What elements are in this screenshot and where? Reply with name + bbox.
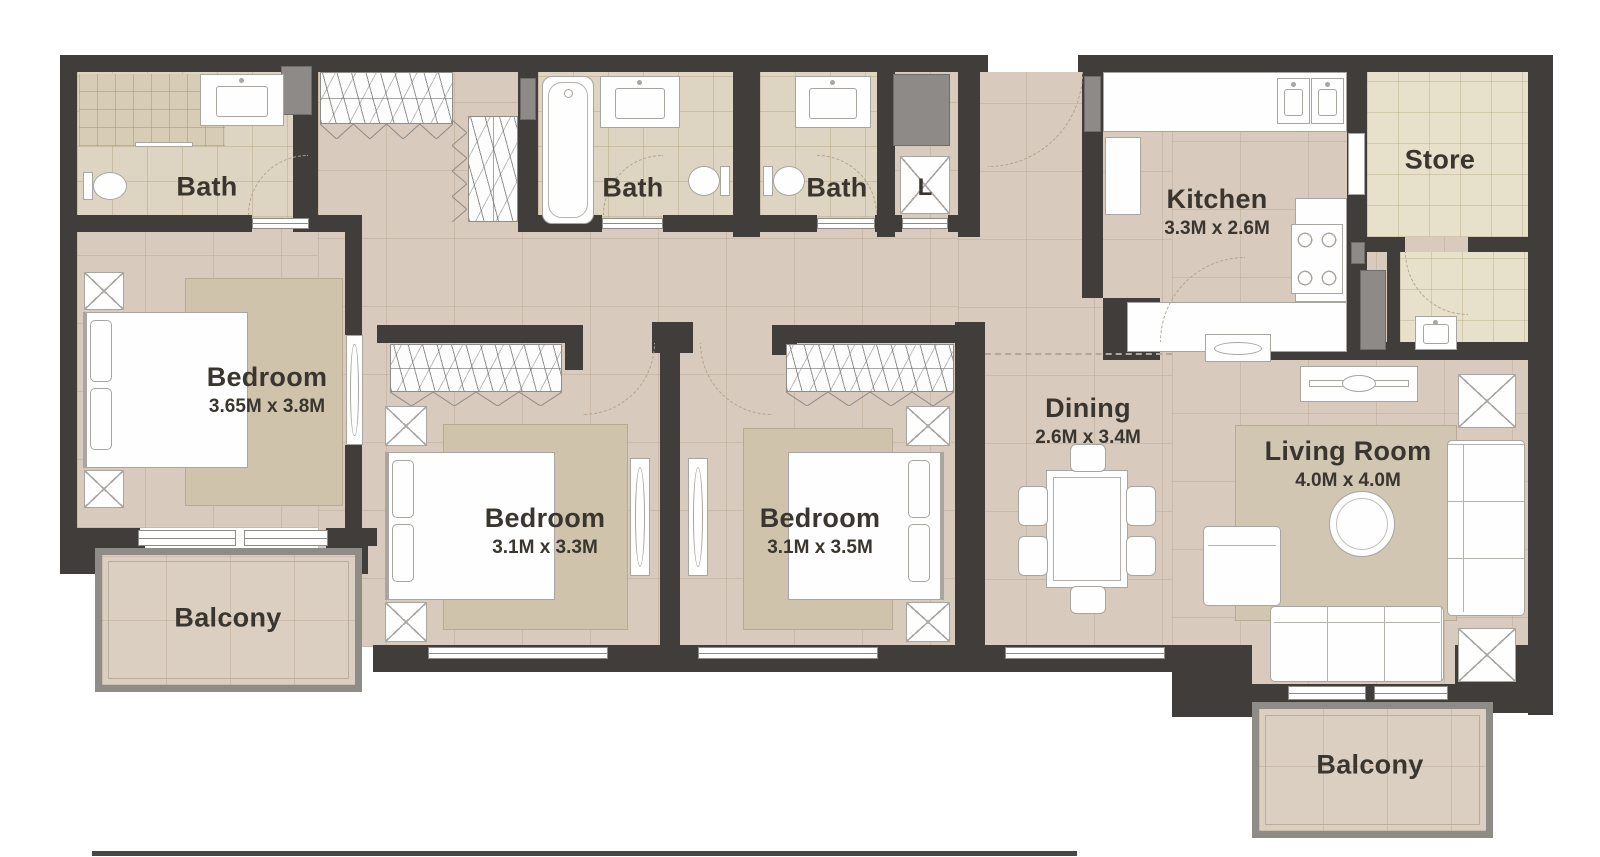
wall (660, 322, 680, 647)
pillow-icon (908, 524, 930, 582)
wall (308, 215, 362, 232)
wall (345, 232, 362, 335)
chair-icon (1070, 586, 1106, 614)
pillow-icon (90, 320, 112, 382)
window (428, 647, 608, 659)
sink-icon (200, 74, 284, 126)
wall (1078, 55, 1553, 72)
service-shaft (281, 66, 312, 115)
balcony-door-sill (1288, 686, 1366, 700)
bath-door-sill (817, 218, 875, 229)
wall (60, 55, 988, 72)
sofa-icon (1447, 440, 1525, 616)
chair-icon (1018, 486, 1048, 526)
pillow-icon (392, 460, 414, 518)
room-label-bedroom-mid: Bedroom 3.1M x 3.3M (485, 503, 606, 559)
sink-icon (1415, 316, 1457, 350)
wall (60, 528, 140, 546)
bifold-door-icon (452, 120, 467, 222)
closet-door-sill (902, 218, 948, 229)
wall (875, 215, 902, 232)
wardrobe-icon (468, 116, 518, 222)
wall (377, 325, 583, 343)
room-label-balcony-left: Balcony (174, 602, 281, 633)
bathtub-icon (542, 76, 594, 224)
wall (1468, 237, 1536, 252)
room-label-balcony-right: Balcony (1316, 749, 1423, 780)
room-label-dining: Dining 2.6M x 3.4M (1035, 393, 1141, 449)
room-label-bedroom-right: Bedroom 3.1M x 3.5M (760, 503, 881, 559)
plant-table-icon (1458, 628, 1516, 682)
bifold-door-icon (786, 392, 954, 406)
chair-icon (1126, 486, 1156, 526)
bifold-door-icon (390, 392, 562, 406)
wall (772, 325, 977, 343)
pillow-icon (908, 460, 930, 518)
wardrobe-icon (390, 344, 562, 392)
window (698, 647, 878, 659)
shower-glass (135, 142, 193, 147)
room-label-bath-top-left: Bath (176, 171, 237, 202)
dining-table-icon (1046, 470, 1128, 588)
mirror-panel-icon (630, 458, 650, 576)
floor-plan: Bath Bath Bath L Kitchen 3.3M x 2.6M Sto… (0, 0, 1600, 857)
wall (948, 215, 958, 232)
wall (345, 445, 362, 548)
nightstand-icon (906, 406, 950, 446)
service-shaft (1084, 76, 1101, 132)
tv-console (1300, 366, 1418, 402)
room-label-living-room: Living Room 4.0M x 4.0M (1265, 436, 1432, 492)
sink-icon (600, 76, 680, 128)
pillow-icon (392, 524, 414, 582)
wall (958, 55, 980, 237)
room-label-bath-mid-right: Bath (806, 172, 867, 203)
nightstand-icon (385, 602, 427, 642)
service-shaft (893, 74, 950, 146)
room-label-store: Store (1405, 144, 1476, 175)
stove-icon (1291, 224, 1343, 294)
wall (733, 72, 760, 237)
bath-door-sill (602, 218, 663, 229)
nightstand-icon (385, 406, 427, 446)
kitchen-sink-icon (1311, 78, 1344, 124)
sink-icon (795, 76, 871, 128)
room-label-bath-mid-left: Bath (602, 172, 663, 203)
wall (60, 55, 77, 548)
wall (1528, 55, 1553, 715)
window (1005, 647, 1165, 659)
mirror-panel-icon (688, 458, 708, 576)
balcony-door-sill (1374, 686, 1448, 700)
bifold-door-icon (320, 124, 453, 139)
pillow-icon (90, 388, 112, 450)
balcony-door-sill (138, 530, 236, 546)
wardrobe-icon (320, 72, 453, 124)
nightstand-icon (906, 602, 950, 642)
wall (565, 325, 583, 370)
service-shaft (1360, 270, 1386, 350)
nightstand-icon (84, 470, 124, 508)
wall (955, 322, 985, 647)
balcony-door-sill (244, 530, 328, 546)
kitchen-sink-icon (1277, 78, 1310, 124)
service-shaft (520, 78, 536, 120)
chair-icon (1126, 536, 1156, 576)
room-label-laundry: L (918, 174, 933, 202)
room-label-bedroom-left: Bedroom 3.65M x 3.8M (207, 362, 328, 418)
coffee-table-icon (1329, 491, 1395, 557)
bath-door-sill (252, 218, 309, 229)
nightstand-icon (84, 272, 124, 310)
plant-table-icon (1458, 374, 1516, 428)
page-edge-line (92, 851, 1077, 856)
room-label-kitchen: Kitchen 3.3M x 2.6M (1164, 184, 1270, 240)
tv-icon (1342, 375, 1376, 392)
wall (663, 215, 817, 232)
sofa-icon (1270, 606, 1444, 682)
sliding-door-mirror-icon (346, 335, 363, 445)
chair-icon (1018, 536, 1048, 576)
wardrobe-icon (786, 344, 954, 392)
fridge-cabinet (1105, 137, 1141, 215)
ceiling-break-line (985, 353, 1172, 355)
wall (1367, 237, 1405, 252)
service-shaft (1351, 242, 1365, 264)
armchair-icon (1203, 526, 1281, 606)
store-door-leaf (1348, 133, 1365, 195)
wall (1172, 645, 1252, 717)
wall (60, 215, 252, 232)
